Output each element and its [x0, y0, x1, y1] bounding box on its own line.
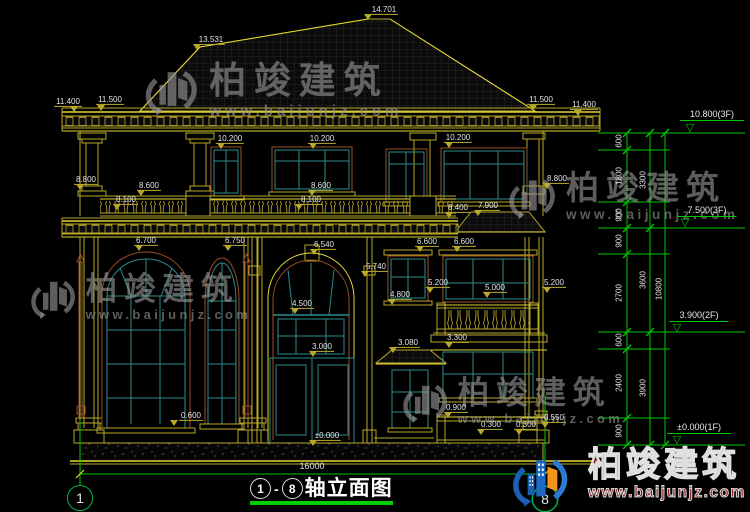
drawing-title: 1 - 8 轴立面图: [250, 478, 393, 499]
title-dash: -: [274, 481, 279, 497]
footer-brand-name: 柏竣建筑: [588, 448, 746, 482]
footer-logo-text: 柏竣建筑 www.baijunjz.com: [588, 448, 746, 502]
title-text: 轴立面图: [305, 478, 393, 499]
drawing-canvas: 柏竣建筑www.baijunjz.com柏竣建筑www.baijunjz.com…: [0, 0, 750, 512]
title-axis-start: 1: [250, 478, 271, 499]
total-width-dimension: 16000: [299, 461, 324, 471]
title-underline: [250, 501, 393, 505]
baijun-logo-icon: [496, 448, 584, 510]
footer-logo: 柏竣建筑 www.baijunjz.com: [496, 448, 746, 510]
axis-bubble-1: 1: [67, 485, 93, 511]
footer-brand-url: www.baijunjz.com: [588, 484, 746, 502]
elevation-linework: [0, 0, 750, 512]
title-axis-end: 8: [282, 478, 303, 499]
